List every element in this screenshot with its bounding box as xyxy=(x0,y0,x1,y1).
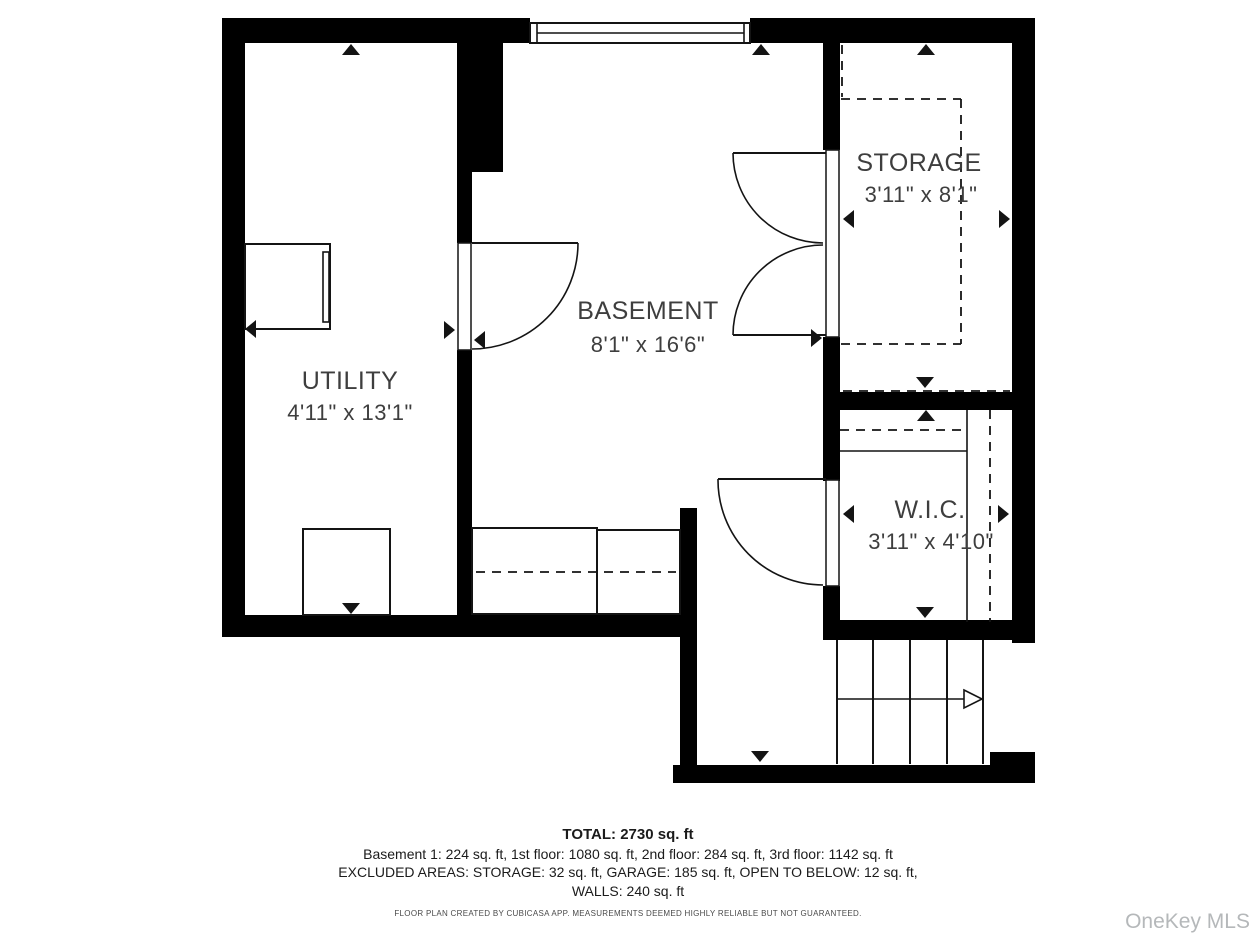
wall-bottom-corridor xyxy=(673,765,1035,783)
door-opening xyxy=(826,150,839,337)
room-labels: UTILITY 4'11" x 13'1" BASEMENT 8'1" x 16… xyxy=(287,149,994,554)
window xyxy=(530,23,750,43)
wall-wic-left-upper xyxy=(823,410,840,481)
disclaimer-text: FLOOR PLAN CREATED BY CUBICASA APP. MEAS… xyxy=(0,909,1256,918)
arrow-right-marker-storage xyxy=(999,210,1010,228)
room-label-basement: BASEMENT xyxy=(577,297,719,325)
wall-wic-bottom xyxy=(823,620,1012,640)
floor-areas-line: Basement 1: 224 sq. ft, 1st floor: 1080 … xyxy=(0,845,1256,864)
wall-basement-storage-lower xyxy=(823,337,840,392)
arrow-left-marker-basement xyxy=(474,331,485,349)
wall-utility-basement-lower xyxy=(457,350,472,615)
arrow-up-marker-storage xyxy=(917,44,935,55)
wall-corridor-left xyxy=(680,508,697,783)
staircase xyxy=(837,640,983,764)
room-dims-wic: 3'11" x 4'10" xyxy=(868,529,994,554)
arrow-right-marker-wic xyxy=(998,505,1009,523)
wall-left xyxy=(222,43,245,637)
wall-basement-storage-upper xyxy=(823,43,840,150)
floor-plan: UTILITY 4'11" x 13'1" BASEMENT 8'1" x 16… xyxy=(0,0,1256,942)
wall-utility-basement-upper xyxy=(457,172,472,243)
stair-direction-arrow-icon xyxy=(964,690,982,708)
utility-water-heater xyxy=(303,529,390,615)
utility-appliance-door xyxy=(323,252,329,322)
room-label-wic: W.I.C. xyxy=(894,496,965,524)
room-dims-utility: 4'11" x 13'1" xyxy=(287,400,413,425)
utility-door xyxy=(458,243,578,350)
double-door-basement-storage xyxy=(733,150,839,337)
room-label-utility: UTILITY xyxy=(302,367,399,395)
arrow-up-marker-utility xyxy=(342,44,360,55)
arrow-down-marker-storage xyxy=(916,377,934,388)
door-swing-arc xyxy=(472,243,578,349)
arrow-right-marker-basement xyxy=(811,329,822,347)
door-swing-arc xyxy=(733,245,823,335)
wall-bottom-left xyxy=(245,615,697,637)
arrow-down-marker-utility xyxy=(342,603,360,614)
door-swing-arc xyxy=(733,153,823,243)
room-dims-basement: 8'1" x 16'6" xyxy=(591,332,705,357)
total-area-line: TOTAL: 2730 sq. ft xyxy=(0,826,1256,845)
door-opening xyxy=(458,243,471,350)
wic-door xyxy=(718,479,839,586)
room-label-storage: STORAGE xyxy=(856,149,981,177)
arrow-left-marker-storage xyxy=(843,210,854,228)
door-swing-arc xyxy=(718,479,823,585)
wall-wic-left-lower xyxy=(823,586,840,620)
arrow-left-marker-wic xyxy=(843,505,854,523)
arrow-left-marker-utility xyxy=(245,320,256,338)
arrow-up-marker-basement xyxy=(752,44,770,55)
walls-area-line: WALLS: 240 sq. ft xyxy=(0,882,1256,901)
storage-dashed-area xyxy=(841,45,1010,391)
area-summary: TOTAL: 2730 sq. ft Basement 1: 224 sq. f… xyxy=(0,826,1256,900)
watermark: OneKey MLS xyxy=(1125,910,1250,934)
arrow-up-marker-wic xyxy=(917,410,935,421)
excluded-areas-line: EXCLUDED AREAS: STORAGE: 32 sq. ft, GARA… xyxy=(0,863,1256,882)
arrow-right-marker-utility xyxy=(444,321,455,339)
sofa-section-left xyxy=(472,528,597,614)
wall-top-right xyxy=(750,18,1035,43)
door-opening xyxy=(826,480,839,586)
utility-appliance xyxy=(245,244,330,329)
arrow-down-marker-basement xyxy=(751,751,769,762)
arrow-down-marker-wic xyxy=(916,607,934,618)
wall-storage-wic-divider xyxy=(823,392,1012,410)
room-dims-storage: 3'11" x 8'1" xyxy=(865,182,978,207)
wall-right xyxy=(1012,18,1035,643)
floor-plan-page: UTILITY 4'11" x 13'1" BASEMENT 8'1" x 16… xyxy=(0,0,1256,942)
wall-utility-block xyxy=(457,18,503,172)
